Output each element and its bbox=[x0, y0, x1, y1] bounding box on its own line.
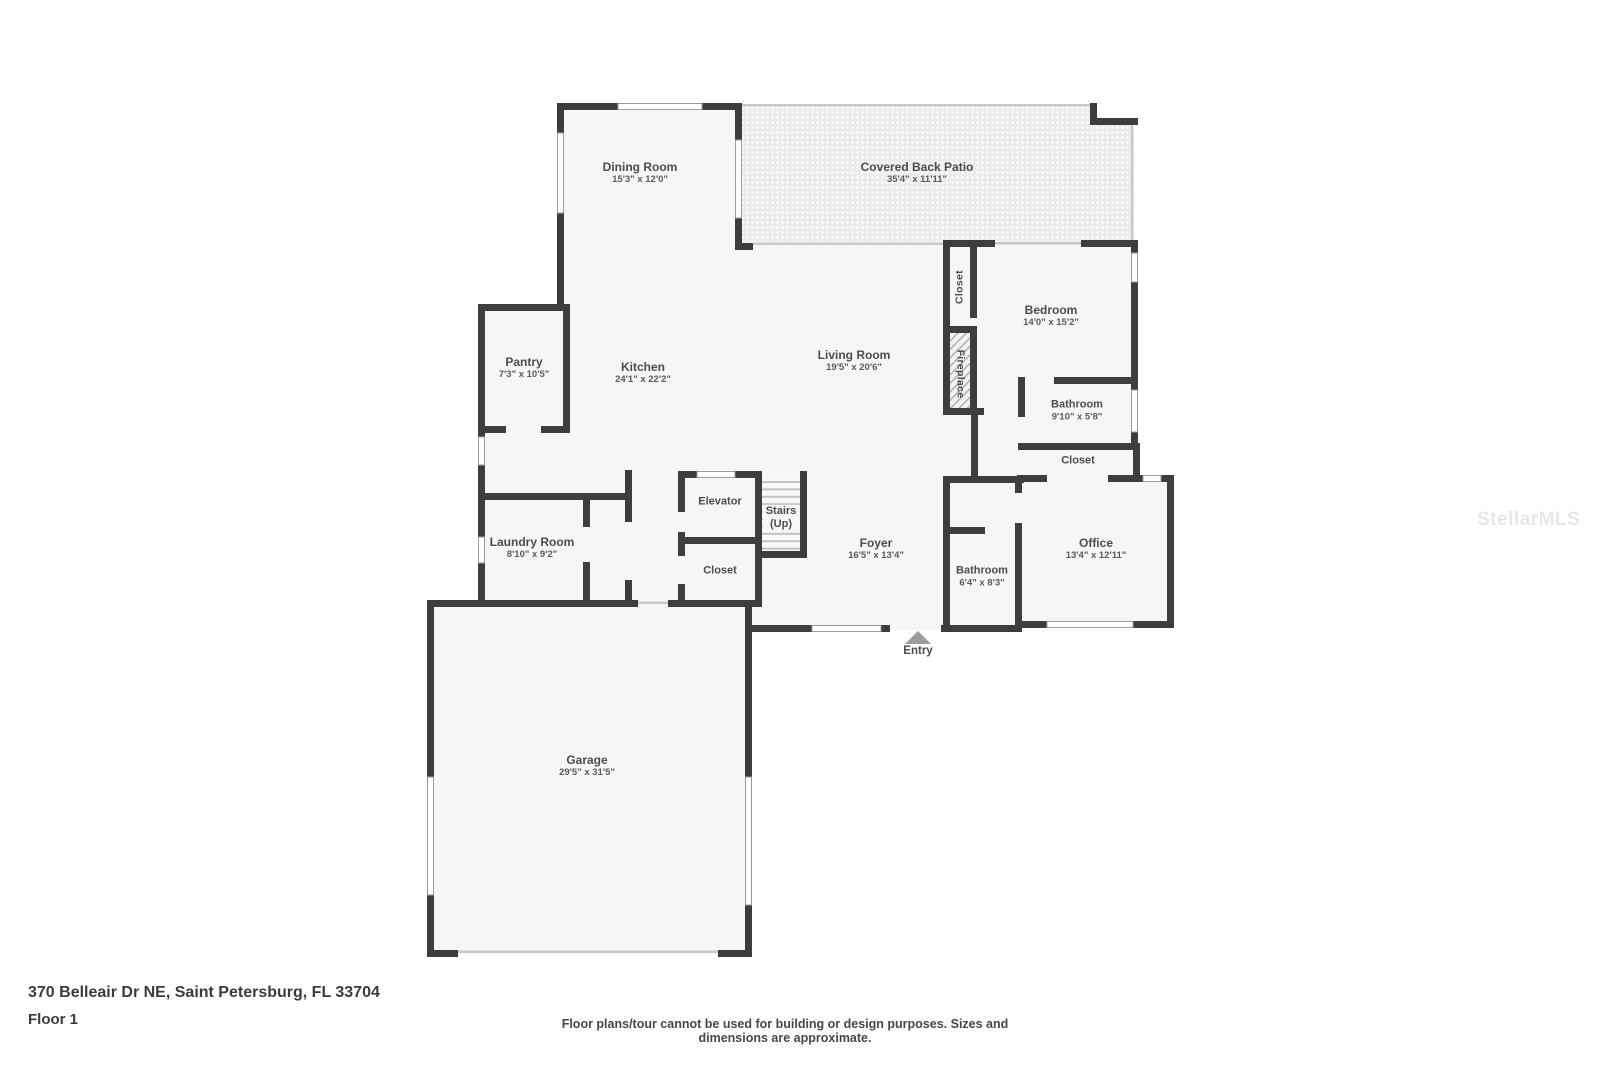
room-label-pantry: Pantry 7'3" x 10'5" bbox=[499, 355, 550, 381]
stellar-mls-watermark: StellarMLS bbox=[1477, 509, 1580, 531]
room-label-bedroom: Bedroom 14'0" x 15'2" bbox=[1023, 303, 1079, 329]
floorplan-page: Dining Room 15'3" x 12'0" Covered Back P… bbox=[0, 0, 1600, 1066]
room-label-stairs: Stairs (Up) bbox=[763, 505, 800, 531]
room-label-elevator: Elevator bbox=[698, 495, 741, 508]
patio-corner-notch bbox=[1095, 104, 1133, 119]
entry-label: Entry bbox=[903, 645, 932, 657]
disclaimer-text: Floor plans/tour cannot be used for buil… bbox=[540, 1017, 1030, 1045]
room-label-living-room: Living Room 19'5" x 20'6" bbox=[818, 348, 891, 374]
entry-arrow-icon bbox=[905, 631, 931, 644]
room-label-bathroom-1: Bathroom 9'10" x 5'8" bbox=[1051, 398, 1103, 423]
property-address: 370 Belleair Dr NE, Saint Petersburg, FL… bbox=[28, 984, 380, 1002]
room-label-foyer: Foyer 16'5" x 13'4" bbox=[848, 536, 904, 562]
room-label-foyer-closet: Closet bbox=[703, 564, 737, 577]
room-label-bathroom-2: Bathroom 6'4" x 8'3" bbox=[956, 564, 1008, 589]
floor-number: Floor 1 bbox=[28, 1011, 78, 1028]
floorplan-drawing bbox=[0, 0, 1600, 1066]
room-label-office: Office 13'4" x 12'11" bbox=[1066, 536, 1127, 562]
room-label-patio: Covered Back Patio 35'4" x 11'11" bbox=[861, 160, 974, 186]
room-label-garage: Garage 29'5" x 31'5" bbox=[559, 753, 615, 779]
room-label-laundry: Laundry Room 8'10" x 9'2" bbox=[490, 535, 575, 561]
room-label-fireplace: Fireplace bbox=[954, 350, 967, 399]
room-label-bedroom-closet: Closet bbox=[954, 270, 967, 304]
room-label-hall-closet: Closet bbox=[1061, 454, 1095, 467]
room-label-dining: Dining Room 15'3" x 12'0" bbox=[603, 160, 678, 186]
room-label-kitchen: Kitchen 24'1" x 22'2" bbox=[615, 360, 671, 386]
